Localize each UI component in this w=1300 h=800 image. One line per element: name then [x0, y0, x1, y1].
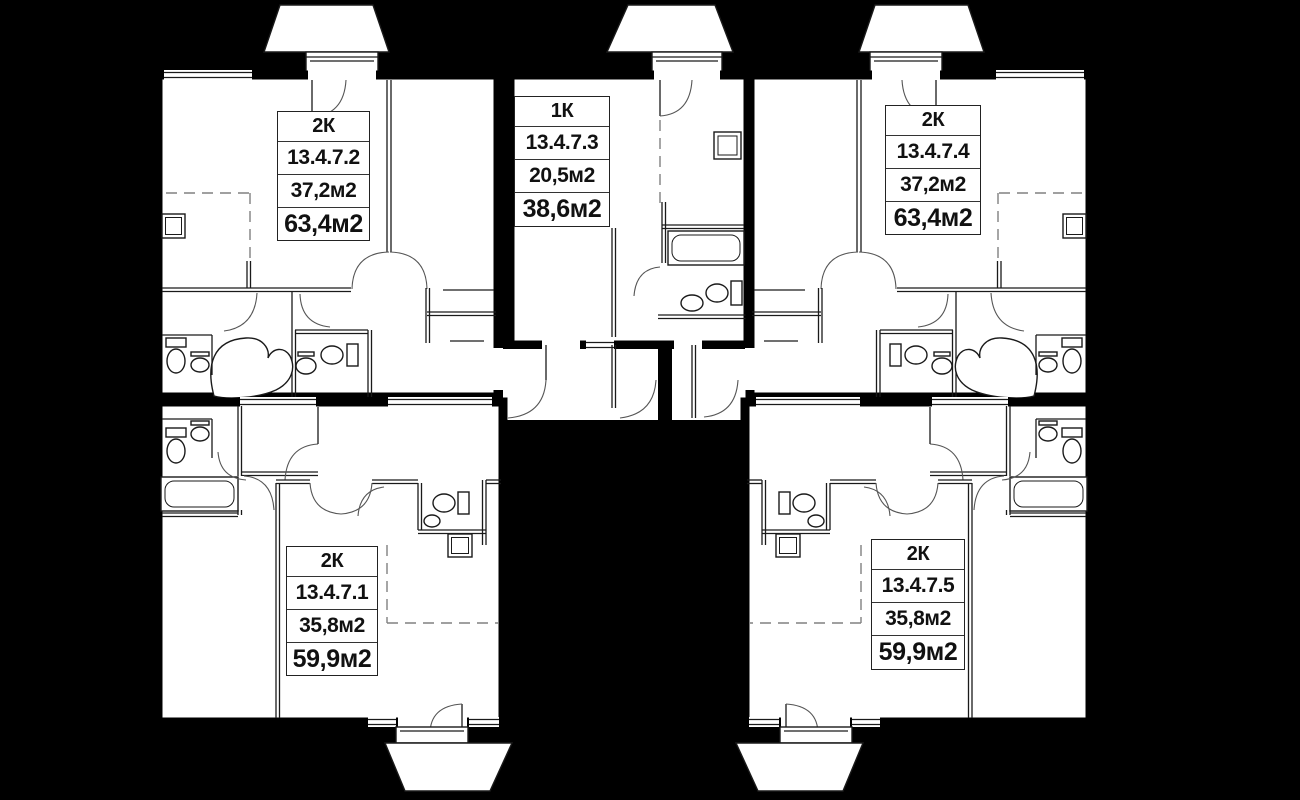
toilet-icon	[166, 428, 186, 463]
apartment-type: 2К	[278, 112, 369, 141]
apartment-number: 13.4.7.5	[872, 569, 964, 602]
balcony-bottom-left	[385, 727, 512, 791]
apartment-card-13475[interactable]: 2К 13.4.7.5 35,8м2 59,9м2	[871, 539, 965, 670]
total-area: 63,4м2	[278, 207, 369, 240]
total-area: 59,9м2	[872, 635, 964, 669]
sink-icon	[296, 352, 316, 374]
living-area: 37,2м2	[886, 168, 980, 201]
balcony-top-left	[264, 5, 389, 72]
total-area: 63,4м2	[886, 201, 980, 234]
sink-icon	[191, 352, 209, 372]
vent-shaft	[714, 132, 741, 159]
bathtub-icon	[668, 231, 744, 265]
apartment-card-13472[interactable]: 2К 13.4.7.2 37,2м2 63,4м2	[277, 111, 370, 241]
apartment-number: 13.4.7.2	[278, 141, 369, 174]
apartment-type: 2К	[872, 540, 964, 569]
apartment-number: 13.4.7.3	[515, 126, 609, 159]
apartment-card-13474[interactable]: 2К 13.4.7.4 37,2м2 63,4м2	[885, 105, 981, 235]
total-area: 59,9м2	[287, 642, 377, 675]
balcony-top-middle	[607, 5, 733, 72]
sink-icon	[681, 295, 703, 311]
living-area: 35,8м2	[287, 609, 377, 642]
apartment-card-13471[interactable]: 2К 13.4.7.1 35,8м2 59,9м2	[286, 546, 378, 676]
apartment-type: 2К	[886, 106, 980, 135]
apartment-number: 13.4.7.4	[886, 135, 980, 168]
apartment-number: 13.4.7.1	[287, 576, 377, 609]
toilet-icon	[433, 492, 469, 514]
sink-icon	[191, 421, 209, 441]
living-area: 37,2м2	[278, 174, 369, 207]
floor-plan-page: 2К 13.4.7.1 35,8м2 59,9м2 2К 13.4.7.2 37…	[0, 0, 1300, 800]
apartment-card-13473[interactable]: 1К 13.4.7.3 20,5м2 38,6м2	[514, 96, 610, 227]
vent-shaft	[448, 534, 472, 557]
living-area: 35,8м2	[872, 602, 964, 635]
floor-plan-drawing	[0, 0, 1300, 800]
living-area: 20,5м2	[515, 159, 609, 192]
apartment-type: 2К	[287, 547, 377, 576]
apartment-type: 1К	[515, 97, 609, 126]
vent-shaft	[162, 214, 185, 238]
sink-icon	[424, 515, 440, 527]
total-area: 38,6м2	[515, 192, 609, 226]
bathtub-icon	[161, 477, 238, 511]
toilet-icon	[166, 338, 186, 373]
